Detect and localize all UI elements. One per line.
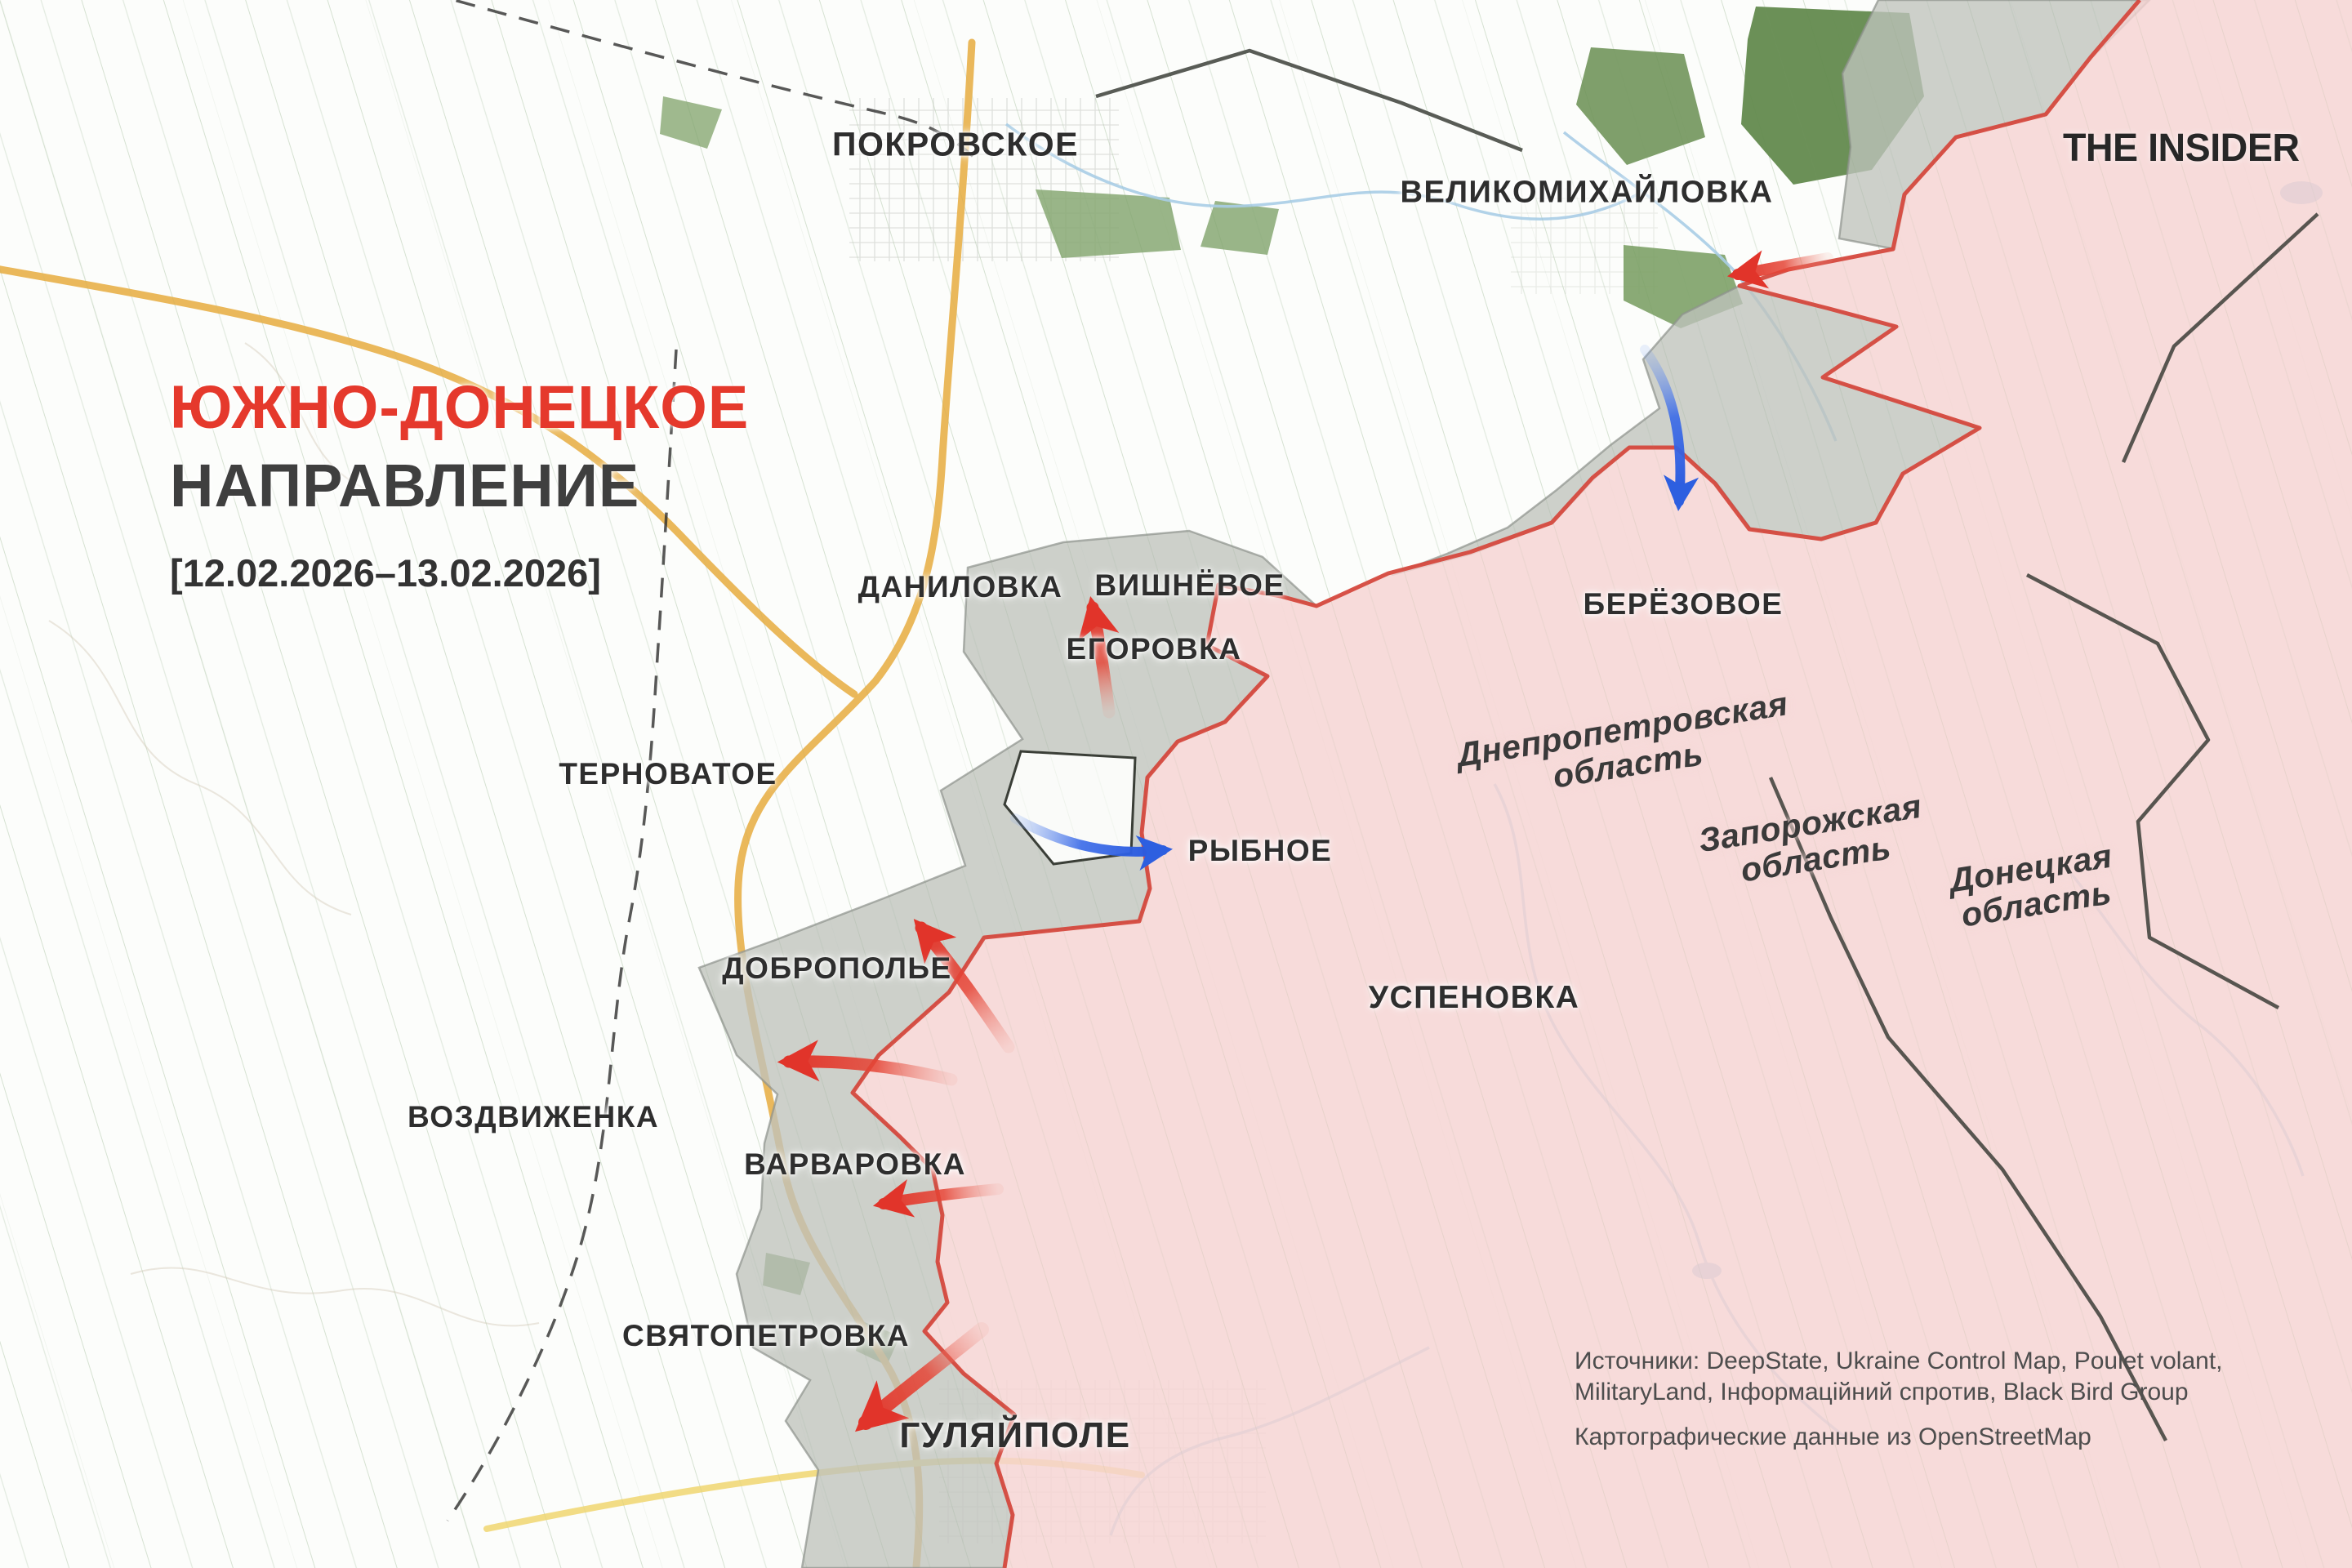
town-label-danilovka: ДАНИЛОВКА [858, 570, 1063, 604]
attribution-cartography: Картографические данные из OpenStreetMap [1575, 1422, 2223, 1453]
title-date-range: [12.02.2026–13.02.2026] [170, 550, 749, 595]
town-label-velikomikhaylovka: ВЕЛИКОМИХАЙЛОВКА [1401, 176, 1774, 211]
town-label-egorovka: ЕГОРОВКА [1067, 632, 1242, 666]
town-label-beryozovoe: БЕРЁЗОВОЕ [1584, 587, 1784, 621]
title-line-2: НАПРАВЛЕНИЕ [170, 456, 749, 516]
map-canvas [0, 0, 2352, 1568]
town-label-vishnyovoe: ВИШНЁВОЕ [1094, 568, 1285, 603]
map-screenshot: ПОКРОВСКОЕ ВЕЛИКОМИХАЙЛОВКА ДАНИЛОВКА ВИ… [0, 0, 2352, 1568]
attribution-sources-line2: MilitaryLand, Інформаційний спротив, Bla… [1575, 1377, 2223, 1408]
town-label-varvarovka: ВАРВАРОВКА [744, 1147, 966, 1182]
title-block: ЮЖНО-ДОНЕЦКОЕ НАПРАВЛЕНИЕ [12.02.2026–13… [170, 377, 749, 595]
field-parcels-overlay [0, 0, 2352, 1568]
attribution-sources-line1: Источники: DeepState, Ukraine Control Ma… [1575, 1346, 2223, 1377]
the-insider-logo: THE INSIDER [2063, 126, 2300, 171]
title-line-1: ЮЖНО-ДОНЕЦКОЕ [170, 377, 749, 438]
town-label-svyatopetrovka: СВЯТОПЕТРОВКА [622, 1319, 910, 1353]
town-label-uspenovka: УСПЕНОВКА [1369, 980, 1580, 1016]
town-label-rybnoe: РЫБНОЕ [1188, 834, 1333, 868]
town-label-dobropolye: ДОБРОПОЛЬЕ [722, 951, 951, 986]
town-label-ternovatoe: ТЕРНОВАТОЕ [559, 757, 777, 791]
town-label-vozdvizhenka: ВОЗДВИЖЕНКА [408, 1100, 659, 1134]
town-label-gulyaypole: ГУЛЯЙПОЛЕ [899, 1415, 1130, 1456]
town-label-pokrovskoe: ПОКРОВСКОЕ [832, 126, 1079, 164]
attribution-block: Источники: DeepState, Ukraine Control Ma… [1575, 1346, 2223, 1453]
